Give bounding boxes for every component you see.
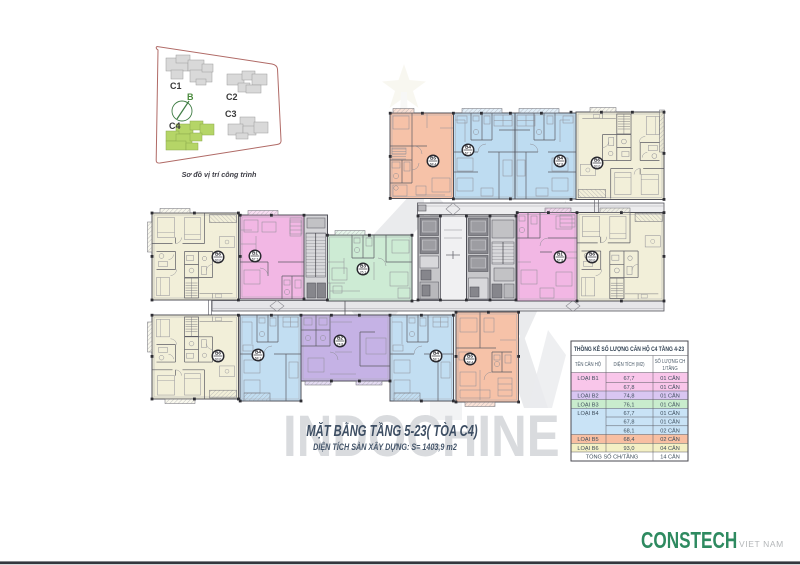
svg-text:14 CĂN: 14 CĂN [660,454,680,461]
svg-text:CONSTECH: CONSTECH [641,527,737,553]
svg-text:C1: C1 [170,81,182,91]
svg-text:93,0: 93,0 [215,358,222,362]
svg-text:Sơ đồ vị trí công trình: Sơ đồ vị trí công trình [182,170,257,179]
svg-text:76,1: 76,1 [360,271,367,275]
svg-text:B4: B4 [255,350,261,355]
svg-text:67,7: 67,7 [252,258,259,262]
svg-text:67,7: 67,7 [624,376,635,382]
svg-text:DIỆN TÍCH SÀN XÂY DỰNG: S= 140: DIỆN TÍCH SÀN XÂY DỰNG: S= 1403,9 m2 [313,440,457,452]
svg-text:02 CĂN: 02 CĂN [660,436,680,443]
svg-text:68,4: 68,4 [467,361,474,365]
svg-text:67,8: 67,8 [557,259,564,263]
svg-text:93,0: 93,0 [594,165,601,169]
svg-text:B4: B4 [465,145,471,150]
svg-text:B5: B5 [430,156,436,161]
svg-text:93,0: 93,0 [589,259,596,263]
svg-text:LOẠI B3: LOẠI B3 [577,402,598,408]
svg-text:1/TẦNG: 1/TẦNG [662,365,678,371]
svg-text:LOẠI B1: LOẠI B1 [577,376,598,382]
svg-text:93,0: 93,0 [624,446,635,452]
svg-text:68,1: 68,1 [255,357,262,361]
svg-text:VIET NAM: VIET NAM [739,539,784,549]
svg-text:67,7: 67,7 [624,411,635,417]
svg-text:01 CĂN: 01 CĂN [660,419,680,426]
svg-text:MẶT BẰNG TẦNG 5-23( TÒA C4): MẶT BẰNG TẦNG 5-23( TÒA C4) [306,422,478,439]
svg-text:TỔNG SỐ CH/TẦNG: TỔNG SỐ CH/TẦNG [586,454,639,461]
svg-text:68,1: 68,1 [624,428,635,434]
svg-text:B2: B2 [337,336,343,341]
svg-text:B1: B1 [557,252,563,257]
svg-text:THỒNG KÊ SỐ LƯỢNG CĂN HỘ C4 TẦ: THỒNG KÊ SỐ LƯỢNG CĂN HỘ C4 TẦNG 4-23 [574,344,684,353]
svg-text:67,8: 67,8 [557,163,564,167]
svg-text:67,8: 67,8 [624,420,635,426]
svg-text:67,8: 67,8 [624,385,635,391]
svg-text:C4: C4 [169,121,181,131]
svg-text:01 CĂN: 01 CĂN [660,375,680,382]
svg-text:B3: B3 [360,264,366,269]
svg-text:B6: B6 [594,158,600,163]
svg-text:67,7: 67,7 [465,152,472,156]
svg-text:LOẠI B6: LOẠI B6 [577,446,598,452]
svg-text:B4: B4 [557,156,563,161]
svg-text:68,4: 68,4 [624,437,635,443]
svg-text:B6: B6 [215,252,221,257]
svg-text:01 CĂN: 01 CĂN [660,384,680,391]
svg-text:68,1: 68,1 [433,358,440,362]
svg-text:01 CĂN: 01 CĂN [660,410,680,417]
svg-text:LOẠI B5: LOẠI B5 [577,437,598,443]
svg-text:01 CĂN: 01 CĂN [660,393,680,400]
svg-text:74,8: 74,8 [337,343,344,347]
svg-text:C3: C3 [225,109,237,119]
svg-text:SỐ LƯỢNG CH: SỐ LƯỢNG CH [655,358,686,364]
svg-text:93,0: 93,0 [215,259,222,263]
svg-text:C2: C2 [226,92,238,102]
svg-text:68,4: 68,4 [430,163,437,167]
svg-text:LOẠI B4: LOẠI B4 [577,411,598,417]
svg-text:01 CĂN: 01 CĂN [660,401,680,408]
svg-text:02 CĂN: 02 CĂN [660,427,680,434]
svg-text:B4: B4 [433,351,439,356]
svg-text:74,8: 74,8 [624,394,635,400]
svg-text:B: B [187,92,194,102]
svg-text:B5: B5 [467,354,473,359]
svg-text:04 CĂN: 04 CĂN [660,445,680,452]
svg-text:76,1: 76,1 [624,402,635,408]
svg-text:LOẠI B2: LOẠI B2 [577,394,598,400]
svg-text:B1: B1 [252,251,258,256]
svg-text:B6: B6 [215,351,221,356]
svg-text:B6: B6 [589,252,595,257]
